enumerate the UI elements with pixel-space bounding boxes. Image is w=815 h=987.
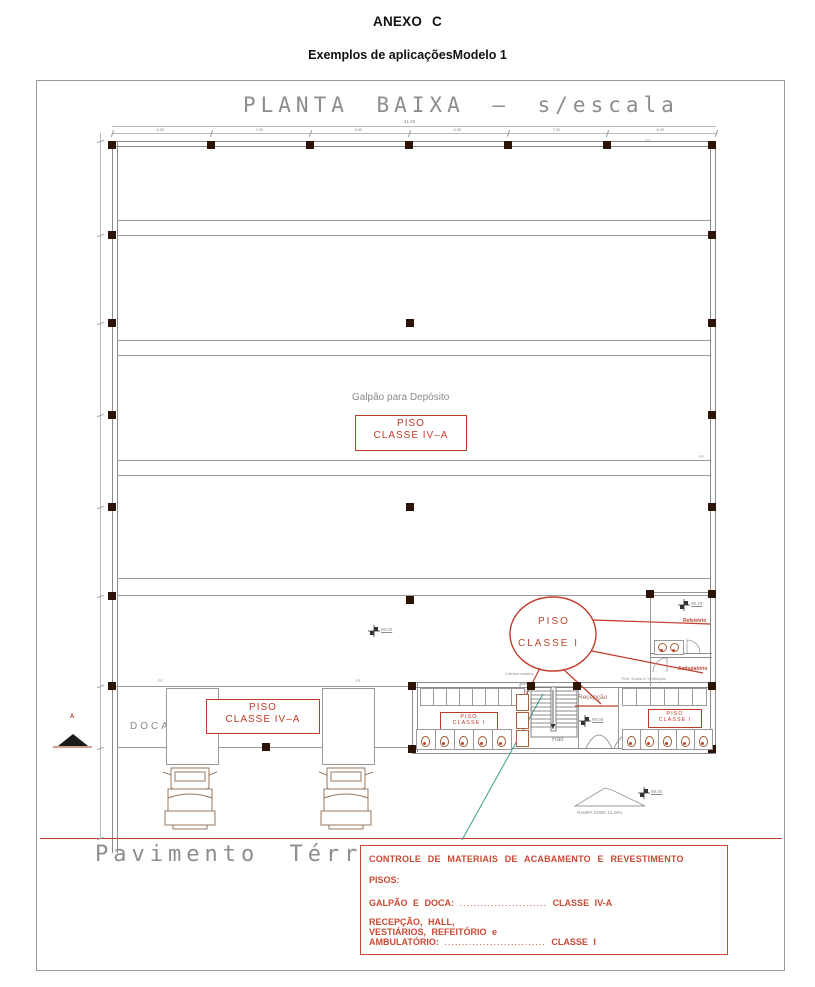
class-tag-ellipse [510,597,596,671]
dimension-segment-label: 6.90 [657,127,665,132]
column [646,590,654,598]
truck-icon [163,768,217,829]
truck-icon [319,768,373,829]
column [708,590,716,598]
door-arc-icon [687,640,700,653]
column [708,503,716,511]
column [408,682,416,690]
toilet-icon [681,736,690,747]
toilet-icon [421,736,430,747]
toilet-icon [459,736,468,747]
column [108,411,116,419]
locker [636,688,651,706]
locker [485,688,499,706]
dimension-segment-label: 6.90 [157,127,165,132]
sink [516,712,529,729]
column [406,503,414,511]
locker [622,688,637,706]
sink [516,730,529,747]
dimension-segment-label: 7.00 [553,127,561,132]
sink-icon [670,643,679,652]
column [708,231,716,239]
column [708,141,716,149]
toilet-icon [645,736,654,747]
staircase [531,687,577,737]
column [708,411,716,419]
locker [459,688,473,706]
locker [664,688,679,706]
column [408,745,416,753]
column [405,141,413,149]
toilet-icon [663,736,672,747]
sink-icon [658,643,667,652]
column [527,682,535,690]
column [406,596,414,604]
toilet-icon [627,736,636,747]
locker [650,688,665,706]
ramp-icon [575,788,645,806]
locker [498,688,512,706]
column [108,319,116,327]
document-page: ANEXO C Exemplos de aplicaçõesModelo 1 P… [0,0,815,987]
locker [692,688,707,706]
column [108,682,116,690]
locker [446,688,460,706]
dimension-segment-label: 6.90 [355,127,363,132]
column [207,141,215,149]
column [108,141,116,149]
column [262,743,270,751]
column [504,141,512,149]
toilet-icon [497,736,506,747]
toilet-icon [699,736,708,747]
column [108,503,116,511]
column [306,141,314,149]
section-marker-icon [53,734,92,747]
toilet-icon [478,736,487,747]
column [708,682,716,690]
column [406,319,414,327]
dimension-segment-label: 6.90 [454,127,462,132]
locker [420,688,434,706]
sink [516,694,529,711]
locker [433,688,447,706]
locker [472,688,486,706]
column [708,319,716,327]
column [108,592,116,600]
toilet-icon [440,736,449,747]
dimension-segment-label: 7.00 [256,127,264,132]
column [603,141,611,149]
locker [678,688,693,706]
column [573,682,581,690]
column [108,231,116,239]
